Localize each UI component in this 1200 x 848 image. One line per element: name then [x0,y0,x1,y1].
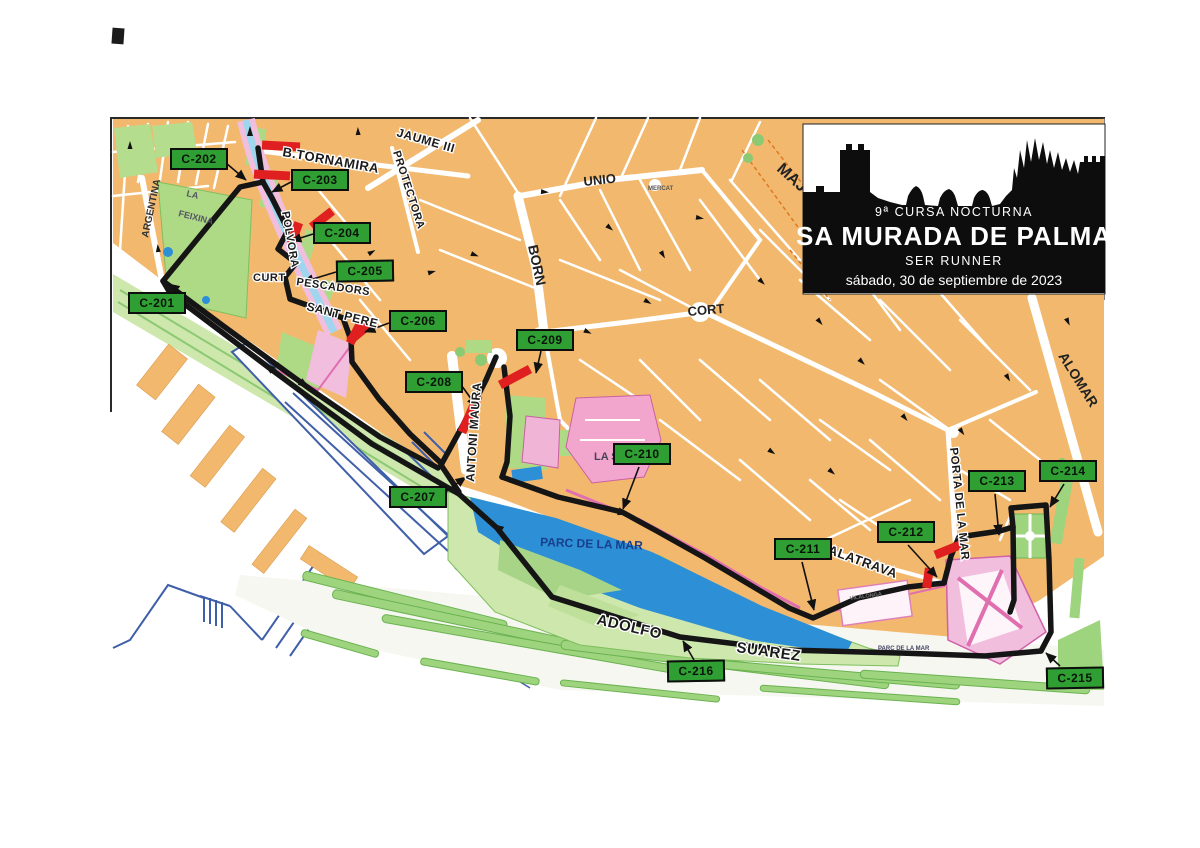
map-svg: B.TORNAMIRA JAUME III PROTECTORA UNIO ME… [0,0,1200,848]
title-line3: SER RUNNER [905,254,1003,268]
scan-mark [111,28,124,45]
checkpoint-label-c211: C-211 [774,538,832,560]
street-label-curt: CURT [253,272,286,284]
checkpoint-label-c207: C-207 [389,486,447,508]
checkpoint-label-c209: C-209 [516,329,574,351]
checkpoint-label-c210: C-210 [613,443,671,465]
street-label-mercat: MERCAT [648,186,674,192]
title-line2: SA MURADA DE PALMA [796,221,1112,251]
street-label-cort: CORT [687,301,725,319]
checkpoint-label-c205: C-205 [336,259,394,282]
title-line4: sábado, 30 de septiembre de 2023 [846,272,1063,288]
checkpoint-label-c201: C-201 [128,292,186,314]
checkpoint-label-c216: C-216 [667,659,725,682]
title-box: 9ª CURSA NOCTURNA SA MURADA DE PALMA SER… [796,124,1112,294]
checkpoint-label-c212: C-212 [877,521,935,543]
area-label-parc-de-la-mar-small: PARC DE LA MAR [878,646,930,652]
checkpoint-label-c203: C-203 [291,169,349,191]
title-line1: 9ª CURSA NOCTURNA [875,205,1033,219]
checkpoint-label-c206: C-206 [389,310,447,332]
checkpoint-label-c215: C-215 [1046,666,1104,689]
checkpoint-label-c214: C-214 [1039,460,1097,482]
race-map-page: B.TORNAMIRA JAUME III PROTECTORA UNIO ME… [0,0,1200,848]
checkpoint-label-c204: C-204 [313,222,371,244]
checkpoint-label-c213: C-213 [968,470,1026,492]
checkpoint-label-c202: C-202 [170,148,228,170]
checkpoint-label-c208: C-208 [405,371,463,393]
